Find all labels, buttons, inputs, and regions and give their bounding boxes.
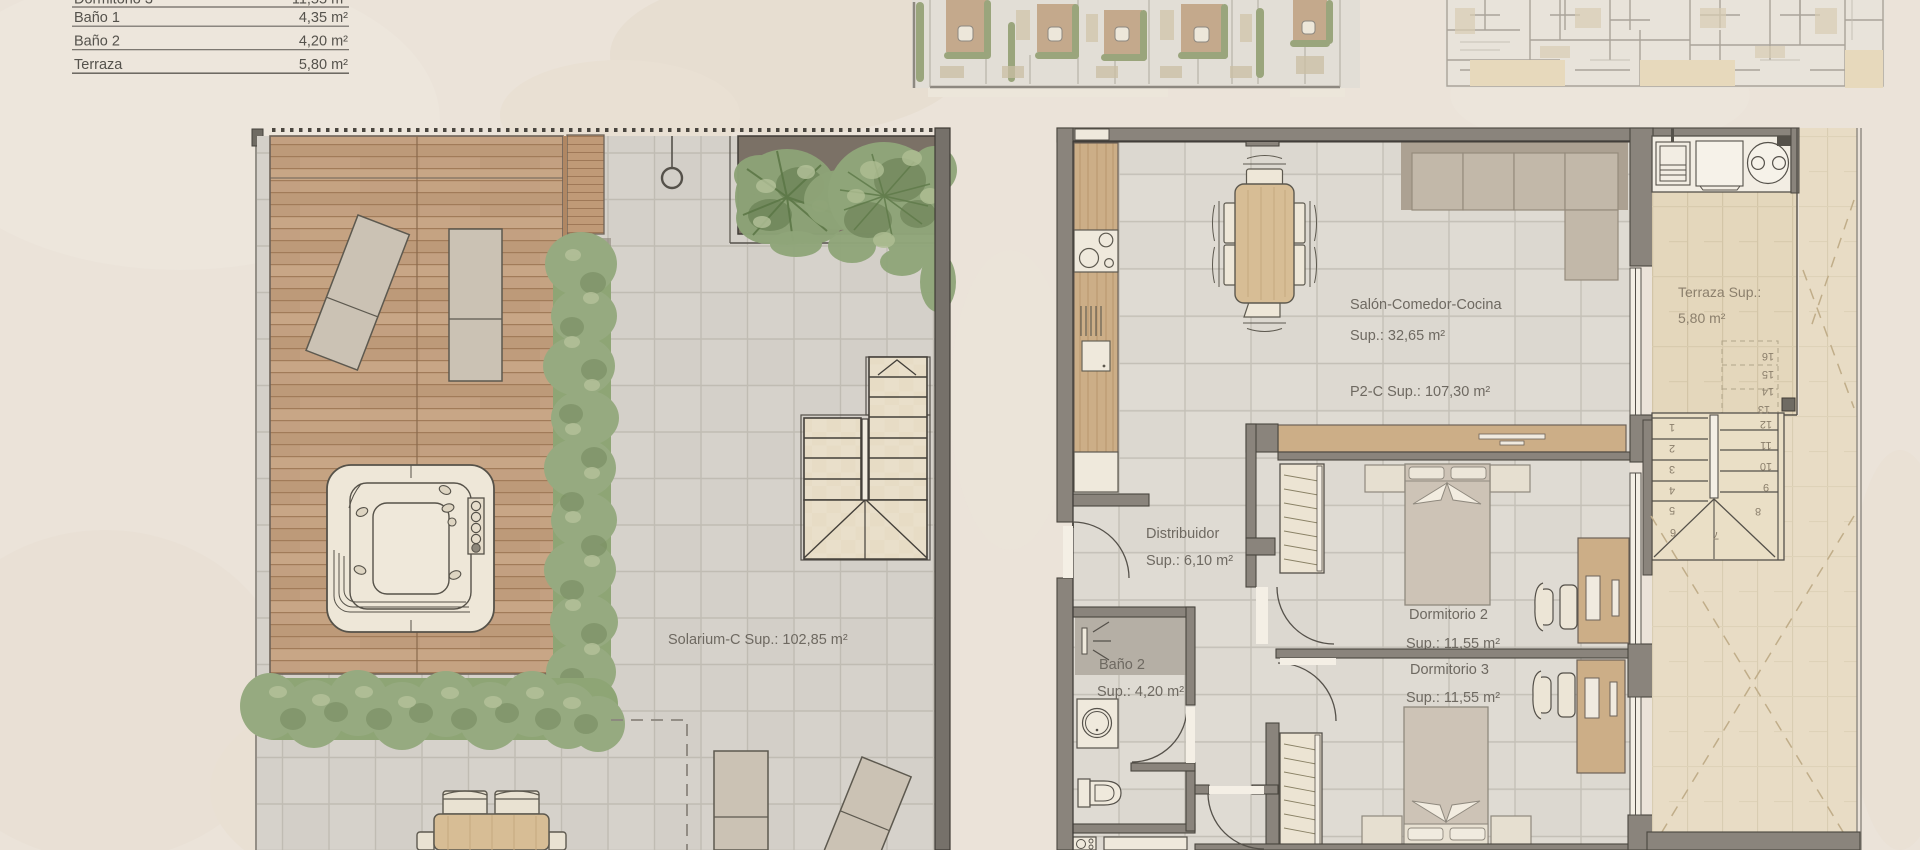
svg-text:5,80 m²: 5,80 m² (1678, 310, 1726, 326)
svg-text:8: 8 (1755, 505, 1761, 517)
svg-text:5,80 m²: 5,80 m² (299, 57, 348, 73)
svg-text:16: 16 (1762, 350, 1774, 362)
svg-text:14: 14 (1762, 385, 1774, 397)
svg-text:4,20 m²: 4,20 m² (299, 33, 348, 49)
svg-text:1: 1 (1669, 421, 1675, 433)
svg-text:2: 2 (1669, 442, 1675, 454)
svg-text:Sup.: 4,20 m²: Sup.: 4,20 m² (1097, 684, 1184, 700)
svg-text:P2-C Sup.: 107,30 m²: P2-C Sup.: 107,30 m² (1350, 384, 1490, 400)
svg-text:15: 15 (1762, 368, 1774, 380)
svg-text:Baño 2: Baño 2 (1099, 657, 1145, 673)
svg-text:7: 7 (1713, 529, 1719, 541)
svg-text:Sup.: 6,10 m²: Sup.: 6,10 m² (1146, 553, 1233, 569)
svg-text:12: 12 (1760, 418, 1772, 430)
svg-text:13: 13 (1758, 403, 1770, 415)
svg-text:Dormitorio 3: Dormitorio 3 (1410, 662, 1489, 678)
svg-text:Salón-Comedor-Cocina: Salón-Comedor-Cocina (1350, 297, 1502, 313)
svg-text:Distribuidor: Distribuidor (1146, 526, 1219, 542)
svg-text:4,35 m²: 4,35 m² (299, 10, 348, 26)
svg-text:4: 4 (1669, 484, 1675, 496)
svg-text:Terraza: Terraza (74, 57, 123, 73)
svg-text:5: 5 (1669, 504, 1675, 516)
svg-text:Solarium-C Sup.: 102,85 m²: Solarium-C Sup.: 102,85 m² (668, 632, 848, 648)
svg-text:Dormitorio 2: Dormitorio 2 (1409, 607, 1488, 623)
svg-text:3: 3 (1669, 463, 1675, 475)
svg-text:10: 10 (1760, 460, 1772, 472)
svg-text:Dormitorio 3: Dormitorio 3 (74, 0, 153, 8)
svg-text:Baño 1: Baño 1 (74, 10, 120, 26)
svg-text:Terraza Sup.:: Terraza Sup.: (1678, 284, 1761, 300)
svg-text:Sup.: 11,55 m²: Sup.: 11,55 m² (1406, 690, 1500, 706)
svg-text:Sup.: 32,65 m²: Sup.: 32,65 m² (1350, 328, 1445, 344)
svg-text:6: 6 (1670, 526, 1676, 538)
svg-text:11,55 m²: 11,55 m² (292, 0, 348, 8)
svg-text:Baño 2: Baño 2 (74, 33, 120, 49)
svg-text:9: 9 (1763, 481, 1769, 493)
svg-text:11: 11 (1760, 439, 1771, 451)
